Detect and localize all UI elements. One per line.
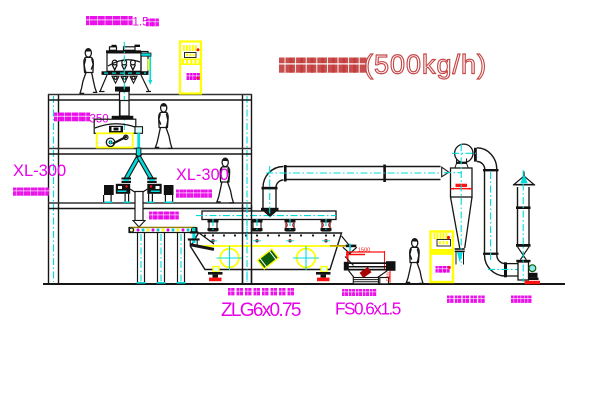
svg-text:(500kg/h): (500kg/h) (364, 50, 487, 80)
svg-text:1500: 1500 (358, 248, 370, 254)
svg-text:540: 540 (387, 272, 393, 281)
svg-text:XL-300: XL-300 (13, 162, 66, 180)
svg-text:FS0.6x1.5: FS0.6x1.5 (335, 299, 401, 319)
svg-text:XL-300: XL-300 (176, 166, 229, 184)
svg-text:ZLG6x0.75: ZLG6x0.75 (221, 300, 301, 321)
